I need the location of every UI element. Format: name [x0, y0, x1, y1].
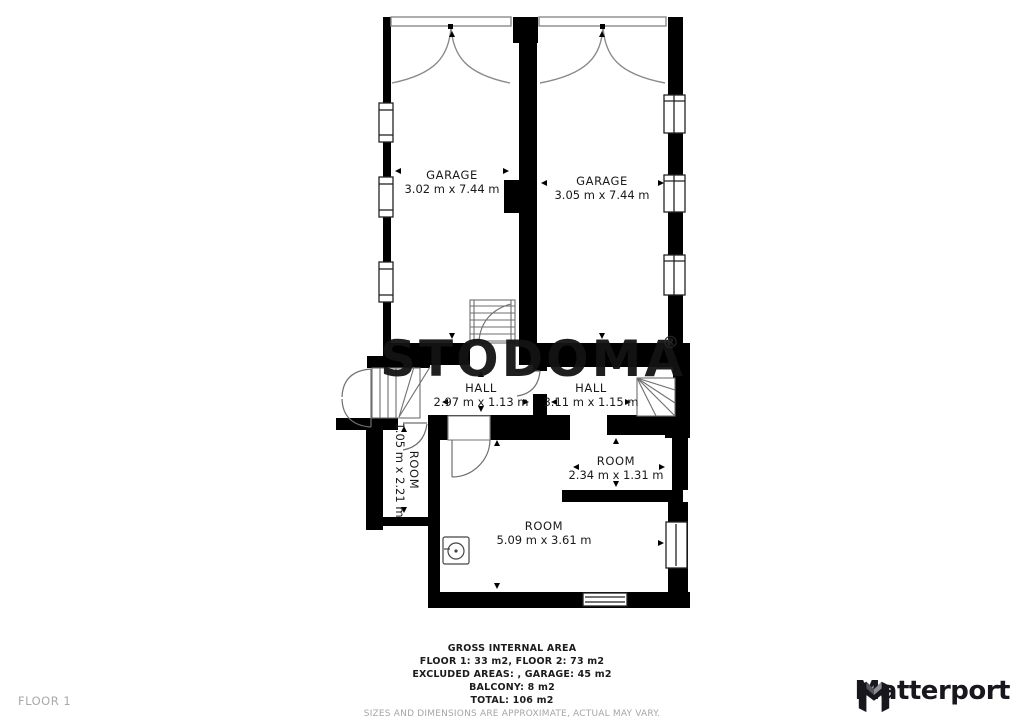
- window-right-2: [664, 175, 685, 212]
- sink-icon: [443, 537, 469, 564]
- svg-text:3.05 m x 7.44 m: 3.05 m x 7.44 m: [554, 188, 649, 202]
- floor-label: FLOOR 1: [18, 694, 71, 708]
- svg-text:GARAGE: GARAGE: [576, 174, 628, 188]
- svg-text:2.97 m x 1.13 m: 2.97 m x 1.13 m: [433, 395, 528, 409]
- room-label-big: ROOM 5.09 m x 3.61 m: [496, 519, 591, 547]
- door-big-room-icon: [448, 416, 490, 477]
- watermark: STODOMA ®: [380, 330, 686, 388]
- svg-text:1.05 m x 2.21 m: 1.05 m x 2.21 m: [393, 422, 407, 517]
- floor-plan-svg: STODOMA ® GARAGE 3.02 m x 7.44 m GARAGE …: [0, 0, 1024, 724]
- window-left-3: [379, 262, 393, 302]
- svg-text:3.11 m x 1.15 m: 3.11 m x 1.15 m: [543, 395, 638, 409]
- svg-text:GARAGE: GARAGE: [426, 168, 478, 182]
- svg-text:2.34 m x 1.31 m: 2.34 m x 1.31 m: [568, 468, 663, 482]
- svg-text:HALL: HALL: [465, 381, 497, 395]
- matterport-logo: Matterport: [855, 676, 1010, 706]
- window-right-3: [664, 255, 685, 295]
- watermark-text: STODOMA: [380, 330, 686, 388]
- room-label-garage-right: GARAGE 3.05 m x 7.44 m: [554, 174, 649, 202]
- matterport-icon: [855, 676, 893, 714]
- window-left-1: [379, 103, 393, 142]
- summary-title: GROSS INTERNAL AREA: [0, 642, 1024, 655]
- window-bottom: [583, 593, 627, 606]
- svg-text:ROOM: ROOM: [597, 454, 635, 468]
- svg-text:ROOM: ROOM: [407, 451, 421, 489]
- room-label-garage-left: GARAGE 3.02 m x 7.44 m: [404, 168, 499, 196]
- svg-text:5.09 m x 3.61 m: 5.09 m x 3.61 m: [496, 533, 591, 547]
- svg-text:3.02 m x 7.44 m: 3.02 m x 7.44 m: [404, 182, 499, 196]
- room-label-small-left: ROOM 1.05 m x 2.21 m: [393, 422, 421, 517]
- trademark-symbol: ®: [662, 333, 679, 353]
- summary-floors: FLOOR 1: 33 m2, FLOOR 2: 73 m2: [0, 655, 1024, 668]
- svg-text:ROOM: ROOM: [525, 519, 563, 533]
- window-big-room-right: [666, 522, 687, 568]
- room-label-small-right: ROOM 2.34 m x 1.31 m: [568, 454, 663, 482]
- floorplan-page: STODOMA ® GARAGE 3.02 m x 7.44 m GARAGE …: [0, 0, 1024, 724]
- garage-door-right-icon: [539, 17, 666, 83]
- window-left-2: [379, 177, 393, 217]
- svg-text:HALL: HALL: [575, 381, 607, 395]
- window-right-1: [664, 95, 685, 133]
- garage-door-left-icon: [391, 17, 511, 83]
